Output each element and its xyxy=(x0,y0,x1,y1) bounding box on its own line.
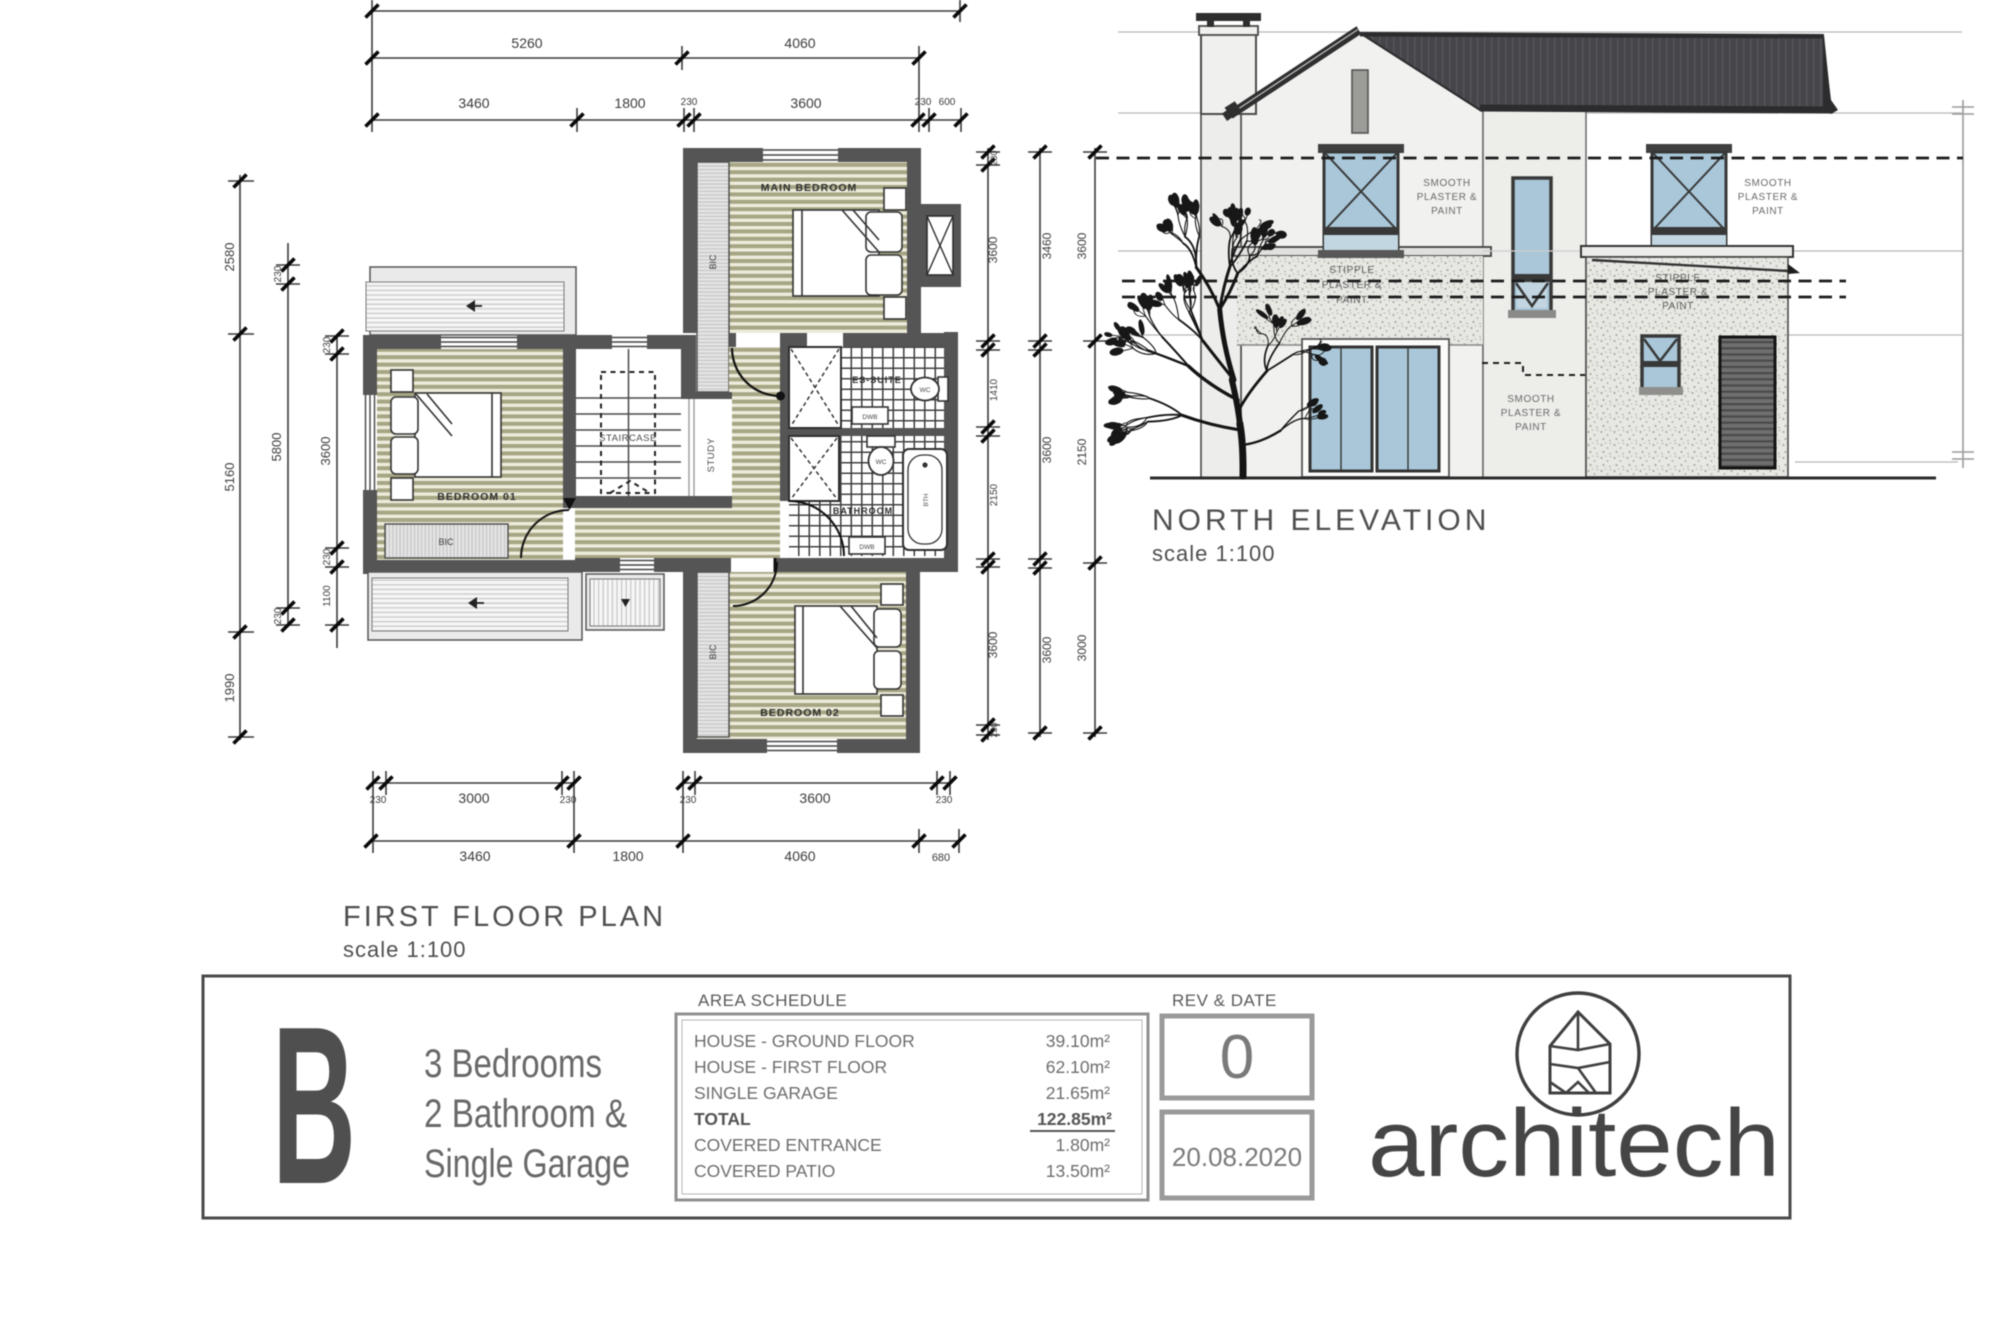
svg-text:3600: 3600 xyxy=(986,236,1000,263)
svg-text:680: 680 xyxy=(932,852,950,864)
svg-text:230: 230 xyxy=(915,97,932,108)
svg-text:3600: 3600 xyxy=(1075,232,1089,259)
svg-text:STUDY: STUDY xyxy=(706,437,717,472)
svg-text:1800: 1800 xyxy=(614,95,645,111)
svg-text:230: 230 xyxy=(370,795,387,806)
svg-text:3460: 3460 xyxy=(458,95,489,111)
svg-text:BEDROOM 02: BEDROOM 02 xyxy=(760,707,839,719)
svg-text:DWB: DWB xyxy=(859,544,874,551)
svg-text:scale 1:100: scale 1:100 xyxy=(1152,541,1276,566)
svg-text:600: 600 xyxy=(939,97,956,108)
svg-text:230: 230 xyxy=(936,795,953,806)
svg-text:230: 230 xyxy=(989,722,999,737)
svg-text:STIPPLE: STIPPLE xyxy=(1329,265,1374,276)
svg-text:architech: architech xyxy=(1368,1090,1780,1197)
svg-text:3000: 3000 xyxy=(458,790,489,806)
svg-text:HOUSE - FIRST FLOOR: HOUSE - FIRST FLOOR xyxy=(694,1057,887,1077)
svg-text:2150: 2150 xyxy=(989,483,1000,506)
svg-text:BIC: BIC xyxy=(438,537,454,547)
svg-text:PAINT: PAINT xyxy=(1752,206,1784,217)
svg-text:WC: WC xyxy=(920,387,931,394)
svg-text:3600: 3600 xyxy=(986,631,1000,658)
svg-text:230: 230 xyxy=(560,795,577,806)
svg-text:BEDROOM 01: BEDROOM 01 xyxy=(437,491,516,503)
svg-text:3600: 3600 xyxy=(318,437,333,466)
svg-text:PAINT: PAINT xyxy=(1662,301,1694,312)
svg-text:230: 230 xyxy=(681,97,698,108)
svg-text:1100: 1100 xyxy=(322,585,333,607)
svg-text:4060: 4060 xyxy=(784,35,815,51)
svg-text:5260: 5260 xyxy=(511,35,542,51)
svg-text:BIC: BIC xyxy=(708,644,718,660)
svg-text:13.50m²: 13.50m² xyxy=(1046,1161,1110,1181)
svg-text:3600: 3600 xyxy=(790,95,821,111)
svg-text:230: 230 xyxy=(273,265,284,282)
svg-text:STAIRCASE: STAIRCASE xyxy=(599,433,657,444)
svg-text:39.10m²: 39.10m² xyxy=(1046,1031,1110,1051)
svg-text:3000: 3000 xyxy=(1075,634,1089,661)
svg-text:SMOOTH: SMOOTH xyxy=(1744,178,1792,189)
svg-text:COVERED PATIO: COVERED PATIO xyxy=(694,1161,835,1181)
svg-text:PLASTER &: PLASTER & xyxy=(1501,408,1561,419)
svg-text:B: B xyxy=(272,979,356,1231)
svg-text:3460: 3460 xyxy=(1040,232,1054,259)
svg-text:3600: 3600 xyxy=(1040,636,1054,663)
svg-text:ES-SUITE: ES-SUITE xyxy=(852,375,902,385)
svg-text:NORTH ELEVATION: NORTH ELEVATION xyxy=(1152,504,1490,537)
svg-text:BTH: BTH xyxy=(923,493,930,506)
svg-text:0: 0 xyxy=(1220,1023,1254,1092)
svg-text:1800: 1800 xyxy=(612,848,643,864)
svg-text:3600: 3600 xyxy=(1040,436,1054,463)
svg-text:230: 230 xyxy=(322,336,333,353)
svg-text:AREA SCHEDULE: AREA SCHEDULE xyxy=(698,991,847,1010)
svg-text:62.10m²: 62.10m² xyxy=(1046,1057,1110,1077)
svg-text:FIRST FLOOR PLAN: FIRST FLOOR PLAN xyxy=(343,901,666,933)
svg-text:1990: 1990 xyxy=(222,674,237,703)
svg-text:1.80m²: 1.80m² xyxy=(1056,1135,1111,1155)
svg-text:Single Garage: Single Garage xyxy=(424,1142,630,1186)
svg-text:COVERED ENTRANCE: COVERED ENTRANCE xyxy=(694,1135,882,1155)
svg-text:5800: 5800 xyxy=(269,433,284,462)
svg-text:2 Bathroom &: 2 Bathroom & xyxy=(424,1092,627,1136)
svg-text:SMOOTH: SMOOTH xyxy=(1423,178,1471,189)
svg-text:230: 230 xyxy=(273,607,284,624)
svg-text:21.65m²: 21.65m² xyxy=(1046,1083,1110,1103)
svg-text:2580: 2580 xyxy=(222,243,237,272)
svg-text:20.08.2020: 20.08.2020 xyxy=(1172,1142,1302,1172)
svg-text:230: 230 xyxy=(680,795,697,806)
svg-text:BIC: BIC xyxy=(708,254,718,270)
svg-text:3 Bedrooms: 3 Bedrooms xyxy=(424,1042,602,1086)
svg-text:HOUSE - GROUND FLOOR: HOUSE - GROUND FLOOR xyxy=(694,1031,915,1051)
svg-text:2150: 2150 xyxy=(1075,438,1089,465)
svg-text:BATHROOM: BATHROOM xyxy=(833,506,893,516)
svg-text:REV & DATE: REV & DATE xyxy=(1172,991,1277,1010)
svg-text:SINGLE GARAGE: SINGLE GARAGE xyxy=(694,1083,838,1103)
svg-text:4060: 4060 xyxy=(784,848,815,864)
svg-text:230: 230 xyxy=(322,548,333,565)
svg-text:1410: 1410 xyxy=(989,378,1000,401)
svg-text:MAIN BEDROOM: MAIN BEDROOM xyxy=(761,182,858,194)
svg-text:3460: 3460 xyxy=(459,848,490,864)
svg-text:DWB: DWB xyxy=(862,414,877,421)
svg-text:PAINT: PAINT xyxy=(1515,422,1547,433)
svg-text:SMOOTH: SMOOTH xyxy=(1507,394,1555,405)
svg-text:scale 1:100: scale 1:100 xyxy=(343,937,467,962)
svg-text:122.85m²: 122.85m² xyxy=(1037,1109,1112,1129)
svg-text:TOTAL: TOTAL xyxy=(694,1109,751,1129)
svg-text:230: 230 xyxy=(989,150,999,165)
svg-text:PLASTER &: PLASTER & xyxy=(1417,192,1477,203)
svg-text:WC: WC xyxy=(876,459,887,466)
svg-text:3600: 3600 xyxy=(799,790,830,806)
svg-text:PLASTER &: PLASTER & xyxy=(1738,192,1798,203)
svg-text:PAINT: PAINT xyxy=(1431,206,1463,217)
svg-text:5160: 5160 xyxy=(222,463,237,492)
